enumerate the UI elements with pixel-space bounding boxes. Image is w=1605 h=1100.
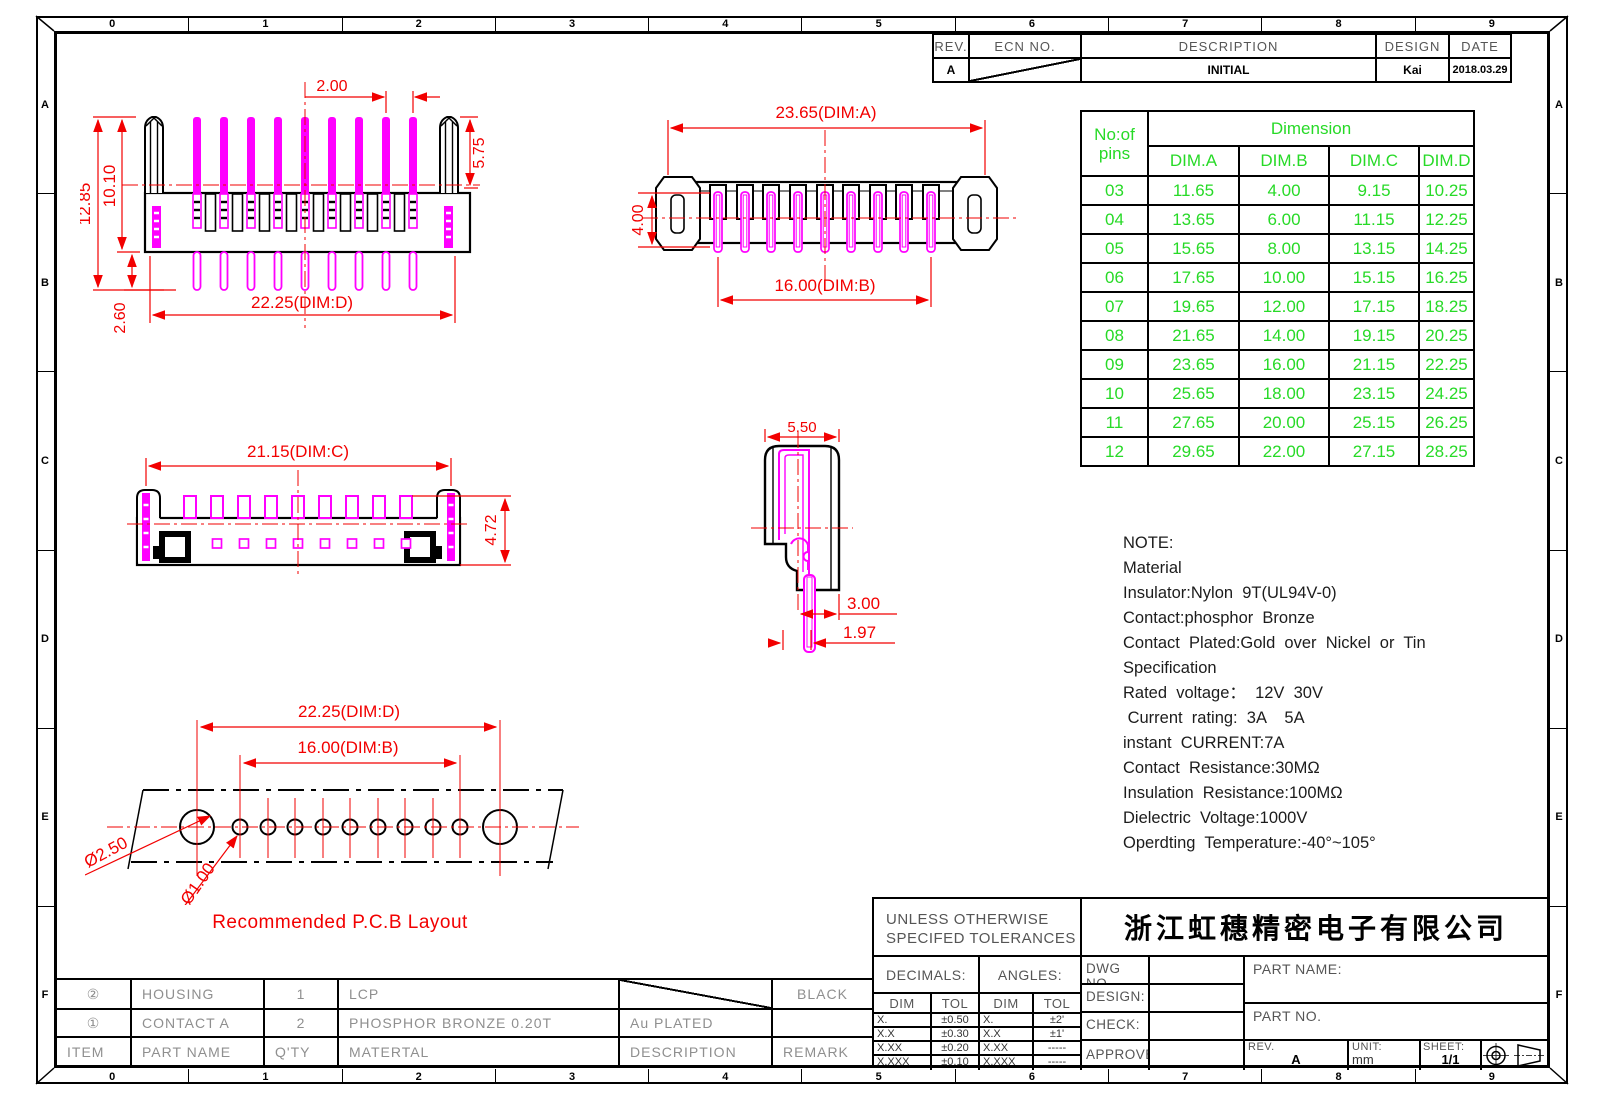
part-name: HOUSING: [131, 979, 264, 1009]
decimal-dim: X.X: [874, 1028, 932, 1042]
dim-b-cell: 18.00: [1239, 379, 1329, 408]
decimal-dim: X.XXX: [874, 1056, 932, 1070]
front-view: 2.00 5.75 12.85 10.10 2.60 22.25(DIM:D): [80, 76, 520, 376]
design-header: DESIGN: [1376, 34, 1449, 58]
angle-tol: -----: [1034, 1056, 1082, 1070]
dim-c-cell: 11.15: [1329, 205, 1419, 234]
angle-dim: X.X: [980, 1028, 1034, 1042]
dim-d-cell: 10.25: [1419, 176, 1474, 205]
connector-body: [145, 117, 470, 290]
pins-cell: 06: [1081, 263, 1148, 292]
dim-d-cell: 16.25: [1419, 263, 1474, 292]
pins-cell: 09: [1081, 350, 1148, 379]
dim-col-header: DIM: [980, 994, 1034, 1014]
dim-b-cell: 6.00: [1239, 205, 1329, 234]
dimension-row: 11 27.65 20.00 25.15 26.25: [1081, 408, 1474, 437]
angle-tol: ±1': [1034, 1028, 1082, 1042]
part-description: Au PLATED: [619, 1009, 772, 1037]
dim-b-cell: 16.00: [1239, 350, 1329, 379]
dimension-row: 07 19.65 12.00 17.15 18.25: [1081, 292, 1474, 321]
dim-b-cell: 14.00: [1239, 321, 1329, 350]
dim-d-cell: 26.25: [1419, 408, 1474, 437]
pins-cell: 08: [1081, 321, 1148, 350]
dim-a-cell: 17.65: [1148, 263, 1239, 292]
note-line: Dielectric Voltage:1000V: [1123, 806, 1553, 831]
parts-column-header: REMARK: [772, 1037, 873, 1067]
dim-column-header: DIM.A: [1148, 146, 1239, 176]
note-line: Insulation Resistance:100MΩ: [1123, 781, 1553, 806]
decimal-tol: ±0.20: [932, 1042, 980, 1056]
dim-a-cell: 25.65: [1148, 379, 1239, 408]
decimals-label: DECIMALS:: [874, 957, 980, 994]
dwg-no-value: [1150, 957, 1245, 985]
ecn-empty-cell: [969, 58, 1081, 82]
note-line: Specification: [1123, 656, 1553, 681]
svg-text:16.00(DIM:B): 16.00(DIM:B): [774, 276, 875, 295]
dim-b-cell: 4.00: [1239, 176, 1329, 205]
note-line: Contact Resistance:30MΩ: [1123, 756, 1553, 781]
note-line: instant CURRENT:7A: [1123, 731, 1553, 756]
dim-c-cell: 25.15: [1329, 408, 1419, 437]
angle-dim: X.: [980, 1014, 1034, 1028]
note-line: Contact:phosphor Bronze: [1123, 606, 1553, 631]
dimension-row: 03 11.65 4.00 9.15 10.25: [1081, 176, 1474, 205]
pins-cell: 11: [1081, 408, 1148, 437]
tol-col-header: TOL: [932, 994, 980, 1014]
dim-b-cell: 12.00: [1239, 292, 1329, 321]
svg-text:1.97: 1.97: [843, 623, 876, 642]
note-line: Current rating: 3A 5A: [1123, 706, 1553, 731]
dim-column-header: DIM.D: [1419, 146, 1474, 176]
tol-col-header: TOL: [1034, 994, 1082, 1014]
pins-header: No:ofpins: [1081, 111, 1148, 176]
dim-d-cell: 18.25: [1419, 292, 1474, 321]
parts-column-header: DESCRIPTION: [619, 1037, 772, 1067]
dim-d-cell: 28.25: [1419, 437, 1474, 466]
pcb-band: [128, 790, 563, 869]
check-value: [1150, 1013, 1245, 1041]
svg-text:23.65(DIM:A): 23.65(DIM:A): [775, 103, 876, 122]
rev-field: REV. A: [1245, 1041, 1349, 1070]
dim-c-cell: 21.15: [1329, 350, 1419, 379]
dim-a-cell: 23.65: [1148, 350, 1239, 379]
part-name-field: PART NAME:: [1245, 957, 1550, 1004]
dimension-row: 08 21.65 14.00 19.15 20.25: [1081, 321, 1474, 350]
pins-cell: 04: [1081, 205, 1148, 234]
design-label: DESIGN:: [1082, 985, 1150, 1013]
notes-block: NOTE:MaterialInsulator:Nylon 9T(UL94V-0)…: [1123, 531, 1553, 856]
dim-col-header: DIM: [874, 994, 932, 1014]
dim-d-cell: 20.25: [1419, 321, 1474, 350]
svg-text:22.25(DIM:D): 22.25(DIM:D): [298, 702, 400, 721]
dimension-group-header: Dimension: [1148, 111, 1474, 146]
item-no: ①: [56, 1009, 131, 1037]
svg-text:5.75: 5.75: [471, 137, 488, 168]
connector-top-body: [656, 177, 997, 252]
dimension-row: 12 29.65 22.00 27.15 28.25: [1081, 437, 1474, 466]
parts-column-header: Q'TY: [264, 1037, 338, 1067]
dim-c-cell: 13.15: [1329, 234, 1419, 263]
pcb-layout-view: 22.25(DIM:D) 16.00(DIM:B) Ø2.50 Ø1.00: [85, 690, 595, 905]
svg-text:5.50: 5.50: [787, 420, 816, 436]
svg-text:21.15(DIM:C): 21.15(DIM:C): [247, 442, 349, 461]
dim-d-cell: 12.25: [1419, 205, 1474, 234]
revision-row: A INITIAL Kai 2018.03.29: [933, 58, 1511, 82]
dimension-row: 05 15.65 8.00 13.15 14.25: [1081, 234, 1474, 263]
decimal-tol: ±0.10: [932, 1056, 980, 1070]
company-name: 浙江虹穗精密电子有限公司: [1082, 899, 1550, 957]
note-line: Material: [1123, 556, 1553, 581]
item-no: ②: [56, 979, 131, 1009]
pins-cell: 03: [1081, 176, 1148, 205]
decimal-tol: ±0.30: [932, 1028, 980, 1042]
dimension-table: No:ofpins Dimension DIM.ADIM.BDIM.CDIM.D…: [1080, 110, 1475, 467]
dim-column-header: DIM.C: [1329, 146, 1419, 176]
part-remark: [772, 1009, 873, 1037]
pins-cell: 10: [1081, 379, 1148, 408]
dim-a-cell: 11.65: [1148, 176, 1239, 205]
connector-side-body: [765, 446, 839, 652]
svg-text:10.10: 10.10: [100, 165, 119, 208]
svg-text:3.00: 3.00: [847, 594, 880, 613]
dim-a-cell: 15.65: [1148, 234, 1239, 263]
dim-d-cell: 22.25: [1419, 350, 1474, 379]
description-value: INITIAL: [1081, 58, 1376, 82]
dim-d-cell: 14.25: [1419, 234, 1474, 263]
design-value: Kai: [1376, 58, 1449, 82]
projection-symbol: [1482, 1041, 1548, 1070]
angle-tol: -----: [1034, 1042, 1082, 1056]
parts-column-header: PART NAME: [131, 1037, 264, 1067]
revision-table: REV. ECN NO. DESCRIPTION DESIGN DATE A I…: [932, 33, 1512, 83]
svg-text:4.72: 4.72: [483, 514, 500, 545]
date-header: DATE: [1449, 34, 1511, 58]
check-label: CHECK:: [1082, 1013, 1150, 1041]
note-line: NOTE:: [1123, 531, 1553, 556]
dim-b-cell: 20.00: [1239, 408, 1329, 437]
projection-angle-icon: [1482, 1041, 1548, 1070]
dim-c-cell: 17.15: [1329, 292, 1419, 321]
pins-cell: 12: [1081, 437, 1148, 466]
part-qty: 1: [264, 979, 338, 1009]
part-row-contact: ① CONTACT A 2 PHOSPHOR BRONZE 0.20T Au P…: [56, 1009, 873, 1037]
dim-a-cell: 19.65: [1148, 292, 1239, 321]
dim-c-cell: 23.15: [1329, 379, 1419, 408]
angles-label: ANGLES:: [980, 957, 1082, 994]
part-name: CONTACT A: [131, 1009, 264, 1037]
svg-text:16.00(DIM:B): 16.00(DIM:B): [297, 738, 398, 757]
angle-dim: X.XX: [980, 1042, 1034, 1056]
svg-text:Ø2.50: Ø2.50: [85, 833, 131, 872]
dimension-row: 04 13.65 6.00 11.15 12.25: [1081, 205, 1474, 234]
dim-c-cell: 9.15: [1329, 176, 1419, 205]
svg-text:12.85: 12.85: [80, 183, 94, 226]
parts-column-header: MATERTAL: [338, 1037, 619, 1067]
decimal-tol: ±0.50: [932, 1014, 980, 1028]
note-line: Rated voltage： 12V 30V: [1123, 681, 1553, 706]
pins-cell: 05: [1081, 234, 1148, 263]
part-material: PHOSPHOR BRONZE 0.20T: [338, 1009, 619, 1037]
dim-c-cell: 15.15: [1329, 263, 1419, 292]
svg-text:2.60: 2.60: [112, 302, 129, 333]
part-remark: BLACK: [772, 979, 873, 1009]
note-line: Insulator:Nylon 9T(UL94V-0): [1123, 581, 1553, 606]
dim-column-header: DIM.B: [1239, 146, 1329, 176]
dim-a-cell: 27.65: [1148, 408, 1239, 437]
svg-text:4.00: 4.00: [630, 204, 647, 235]
svg-text:22.25(DIM:D): 22.25(DIM:D): [251, 293, 353, 312]
dimension-row: 09 23.65 16.00 21.15 22.25: [1081, 350, 1474, 379]
approved-label: APPROVED: [1082, 1041, 1150, 1070]
pins-cell: 07: [1081, 292, 1148, 321]
dim-a-cell: 29.65: [1148, 437, 1239, 466]
pcb-dimensions: 22.25(DIM:D) 16.00(DIM:B) Ø2.50 Ø1.00: [85, 702, 496, 905]
dwg-no-label: DWG NO.: [1082, 957, 1150, 985]
svg-text:2.00: 2.00: [316, 78, 347, 95]
bottom-view: 21.15(DIM:C) 4.72: [125, 430, 525, 575]
part-qty: 2: [264, 1009, 338, 1037]
svg-text:Ø1.00: Ø1.00: [177, 859, 219, 905]
rev-value: A: [933, 58, 969, 82]
note-line: Contact Plated:Gold over Nickel or Tin: [1123, 631, 1553, 656]
dim-c-cell: 27.15: [1329, 437, 1419, 466]
decimal-dim: X.XX: [874, 1042, 932, 1056]
angle-dim: X.XXX: [980, 1056, 1034, 1070]
pcb-layout-caption: Recommended P.C.B Layout: [190, 912, 490, 934]
side-view: 5.50 3.00 1.97: [735, 420, 925, 665]
dim-b-cell: 10.00: [1239, 263, 1329, 292]
dim-a-cell: 21.65: [1148, 321, 1239, 350]
decimal-dim: X.: [874, 1014, 932, 1028]
description-header: DESCRIPTION: [1081, 34, 1376, 58]
dim-b-cell: 22.00: [1239, 437, 1329, 466]
dim-c-cell: 19.15: [1329, 321, 1419, 350]
tolerance-note: UNLESS OTHERWISE SPECIFED TOLERANCES: [874, 899, 1082, 957]
part-material: LCP: [338, 979, 619, 1009]
dim-b-cell: 8.00: [1239, 234, 1329, 263]
dimension-row: 10 25.65 18.00 23.15 24.25: [1081, 379, 1474, 408]
dim-d-cell: 24.25: [1419, 379, 1474, 408]
title-block: UNLESS OTHERWISE SPECIFED TOLERANCES 浙江虹…: [872, 897, 1550, 1068]
part-description: [619, 979, 772, 1009]
note-line: Operdting Temperature:-40°~105°: [1123, 831, 1553, 856]
sheet-field: SHEET: 1/1: [1421, 1041, 1482, 1070]
angle-tol: ±2': [1034, 1014, 1082, 1028]
parts-header-row: ITEMPART NAMEQ'TYMATERTALDESCRIPTIONREMA…: [56, 1037, 873, 1067]
part-row-housing: ② HOUSING 1 LCP BLACK: [56, 979, 873, 1009]
date-value: 2018.03.29: [1449, 58, 1511, 82]
rev-header: REV.: [933, 34, 969, 58]
top-view: 23.65(DIM:A) 4.00 16.00(DIM:B): [630, 100, 1030, 315]
dimension-row: 06 17.65 10.00 15.15 16.25: [1081, 263, 1474, 292]
parts-table: ② HOUSING 1 LCP BLACK ① CONTACT A 2 PHOS…: [55, 978, 874, 1068]
dim-a-cell: 13.65: [1148, 205, 1239, 234]
ecn-header: ECN NO.: [969, 34, 1081, 58]
design-value: [1150, 985, 1245, 1013]
part-no-field: PART NO.: [1245, 1004, 1550, 1041]
approved-value: [1150, 1041, 1245, 1070]
unit-field: UNIT: mm: [1349, 1041, 1421, 1070]
parts-column-header: ITEM: [56, 1037, 131, 1067]
